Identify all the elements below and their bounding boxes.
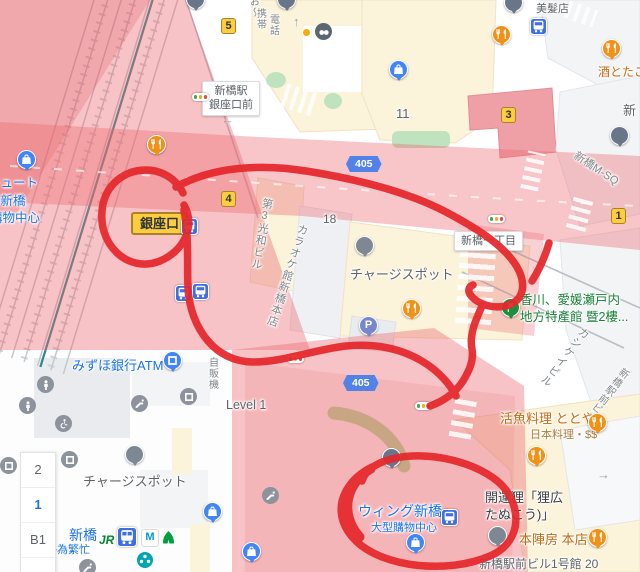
poi-pin[interactable] [125,445,144,464]
exit-number-badge[interactable]: 3 [501,107,516,123]
wheelchair-access-icon[interactable] [55,415,72,432]
poi-label[interactable]: みずほ銀行ATM [72,359,163,374]
restroom-icon[interactable] [19,397,36,414]
poi-label-clipped[interactable]: チュート [0,176,38,190]
atm-icon[interactable] [180,388,197,405]
poi-label-clipped[interactable]: 購物中心 [0,211,40,225]
poi-pin[interactable] [610,126,629,145]
floor-chip-b1[interactable]: B1 [21,523,55,558]
restaurant-pin[interactable] [492,25,511,44]
train-transit-icon[interactable] [117,527,137,547]
yurikamome-logo[interactable] [137,552,153,568]
glasses-poi-icon[interactable] [315,23,332,40]
bus-transit-icon[interactable] [530,18,547,35]
restaurant-pin[interactable] [402,299,421,318]
traffic-light-icon [488,215,505,223]
restaurant-pin[interactable] [527,446,546,465]
shopping-pin[interactable] [17,150,36,169]
parking-letter: P [360,317,377,334]
traffic-light-icon [415,402,432,410]
indoor-label: 自販機 [206,357,218,390]
exit-number-badge[interactable]: 1 [611,208,626,224]
shopping-pin[interactable] [242,542,261,561]
bus-transit-icon[interactable] [192,283,209,300]
route-shield: 405 [346,156,382,172]
poi-pin[interactable] [382,448,401,467]
poi-pin[interactable] [355,236,374,255]
traffic-light-icon [192,93,209,101]
poi-label[interactable]: たぬこう)」 [485,508,554,523]
escalator-icon[interactable] [262,487,279,504]
ginza-exit-badge[interactable]: 銀座口 [131,212,188,235]
shopping-pin[interactable] [406,533,425,552]
restroom-icon[interactable] [37,376,54,393]
restaurant-pin[interactable] [588,528,607,547]
shop-label-vertical[interactable]: 電話 [267,14,279,36]
station-label[interactable]: 新橋 [69,527,97,543]
route-shield: 405 [343,375,379,391]
block-number: 11 [396,107,410,122]
shopping-pin[interactable] [389,60,408,79]
escalator-icon[interactable] [79,559,96,572]
poi-label[interactable]: ウィング新橋 [358,503,442,519]
poi-label[interactable]: 香川、愛媛瀬戸内 [520,293,620,307]
flag-pin[interactable] [501,298,520,317]
poi-label[interactable]: 活魚料理 ととや [500,412,595,427]
restaurant-pin[interactable] [147,135,166,154]
traffic-light-icon [287,355,304,363]
poi-label[interactable]: 地方特產館 暨2樓... [520,310,628,324]
bus-transit-icon[interactable] [175,285,192,302]
station-sign-line2: 銀座口前 [209,98,253,112]
restaurant-pin[interactable] [588,413,607,432]
jr-logo[interactable]: JR [99,533,114,547]
poi-label-clipped: 新 [623,104,636,119]
block-number: 18 [323,213,336,227]
poi-pin[interactable] [488,526,507,545]
poi-sublabel: 日本料理・$$ [530,429,597,442]
intersection-sign: 新橋一丁目 [454,231,523,251]
ginkgo-leaf-logo[interactable] [160,529,177,546]
poi-label[interactable]: チャージスポット [350,268,454,283]
station-entrance-sign: 新橋駅 銀座口前 [202,81,260,116]
road-arrow-right-icon: → [597,467,610,482]
station-sign-line1: 新橋駅 [209,84,253,98]
floor-chip-2[interactable]: 2 [21,453,55,488]
bus-transit-icon[interactable] [441,509,458,526]
poi-label-clipped[interactable]: ン新橋 [0,194,26,208]
floor-selector: 2 1 B1 [20,452,56,572]
tokyo-metro-logo[interactable]: M [141,529,159,547]
atm-pin[interactable] [163,351,182,370]
poi-dot[interactable] [302,28,311,37]
floor-chip-1[interactable]: 1 [21,488,55,523]
shop-label-vertical[interactable]: 携帯 [254,8,266,30]
atm-icon[interactable] [0,457,17,474]
atm-icon[interactable] [61,451,78,468]
poi-label[interactable]: 酒とたこ [598,66,640,80]
parking-pin[interactable]: P [359,316,378,335]
road-arrow-up-icon: ↑ [293,14,300,29]
restaurant-pin[interactable] [602,39,621,58]
escalator-icon[interactable] [131,395,148,412]
building-label: 新橋駅前ビル1号館 20 [479,558,598,572]
level-indicator: Level 1 [226,398,266,412]
poi-label[interactable]: 美髮店 [536,3,569,16]
exit-number-badge[interactable]: 4 [221,191,236,207]
poi-label[interactable]: 開運狸「狸広 [485,491,563,506]
poi-sublabel[interactable]: 大型購物中心 [371,522,437,535]
poi-label[interactable]: チャージスポット [83,475,187,490]
poi-label[interactable]: 本陣房 本店 [519,533,588,548]
map-canvas[interactable]: お〜 携帯 電話 5 ↑ 美髮店 酒とたこ 11 新 3 新橋M-SQ 1 新橋… [0,0,640,572]
exit-number-badge[interactable]: 5 [221,18,236,34]
bus-transit-icon[interactable] [181,218,198,235]
shopping-pin[interactable] [203,502,222,521]
